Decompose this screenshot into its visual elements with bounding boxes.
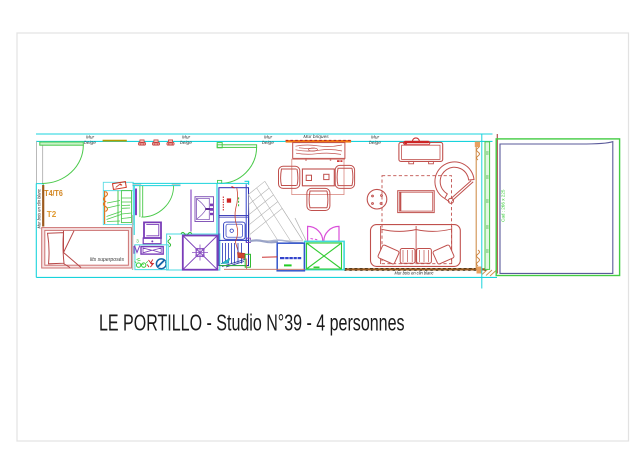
svg-text:Mur bois en clin blanc: Mur bois en clin blanc — [395, 271, 434, 277]
svg-text:Mur bois en clin blanc: Mur bois en clin blanc — [36, 188, 41, 228]
svg-text:Mur: Mur — [182, 135, 191, 141]
svg-text:beige: beige — [262, 140, 274, 146]
svg-text:beige: beige — [180, 140, 192, 146]
svg-text:Mur: Mur — [264, 135, 273, 141]
svg-text:T2: T2 — [47, 210, 57, 219]
svg-text:Mur: Mur — [86, 135, 95, 141]
svg-text:T4/T6: T4/T6 — [44, 189, 63, 198]
svg-text:3: 3 — [136, 238, 139, 243]
svg-text:Cad : 266 x 225: Cad : 266 x 225 — [501, 189, 506, 222]
svg-text:beige: beige — [369, 140, 381, 146]
svg-text:beige: beige — [84, 140, 96, 146]
svg-text:lits superposés: lits superposés — [90, 257, 124, 263]
svg-text:LE PORTILLO - Studio N°39 - 4: LE PORTILLO - Studio N°39 - 4 personnes — [99, 310, 405, 336]
svg-text:Mur briques: Mur briques — [303, 134, 329, 140]
svg-text:Mur: Mur — [371, 135, 380, 141]
